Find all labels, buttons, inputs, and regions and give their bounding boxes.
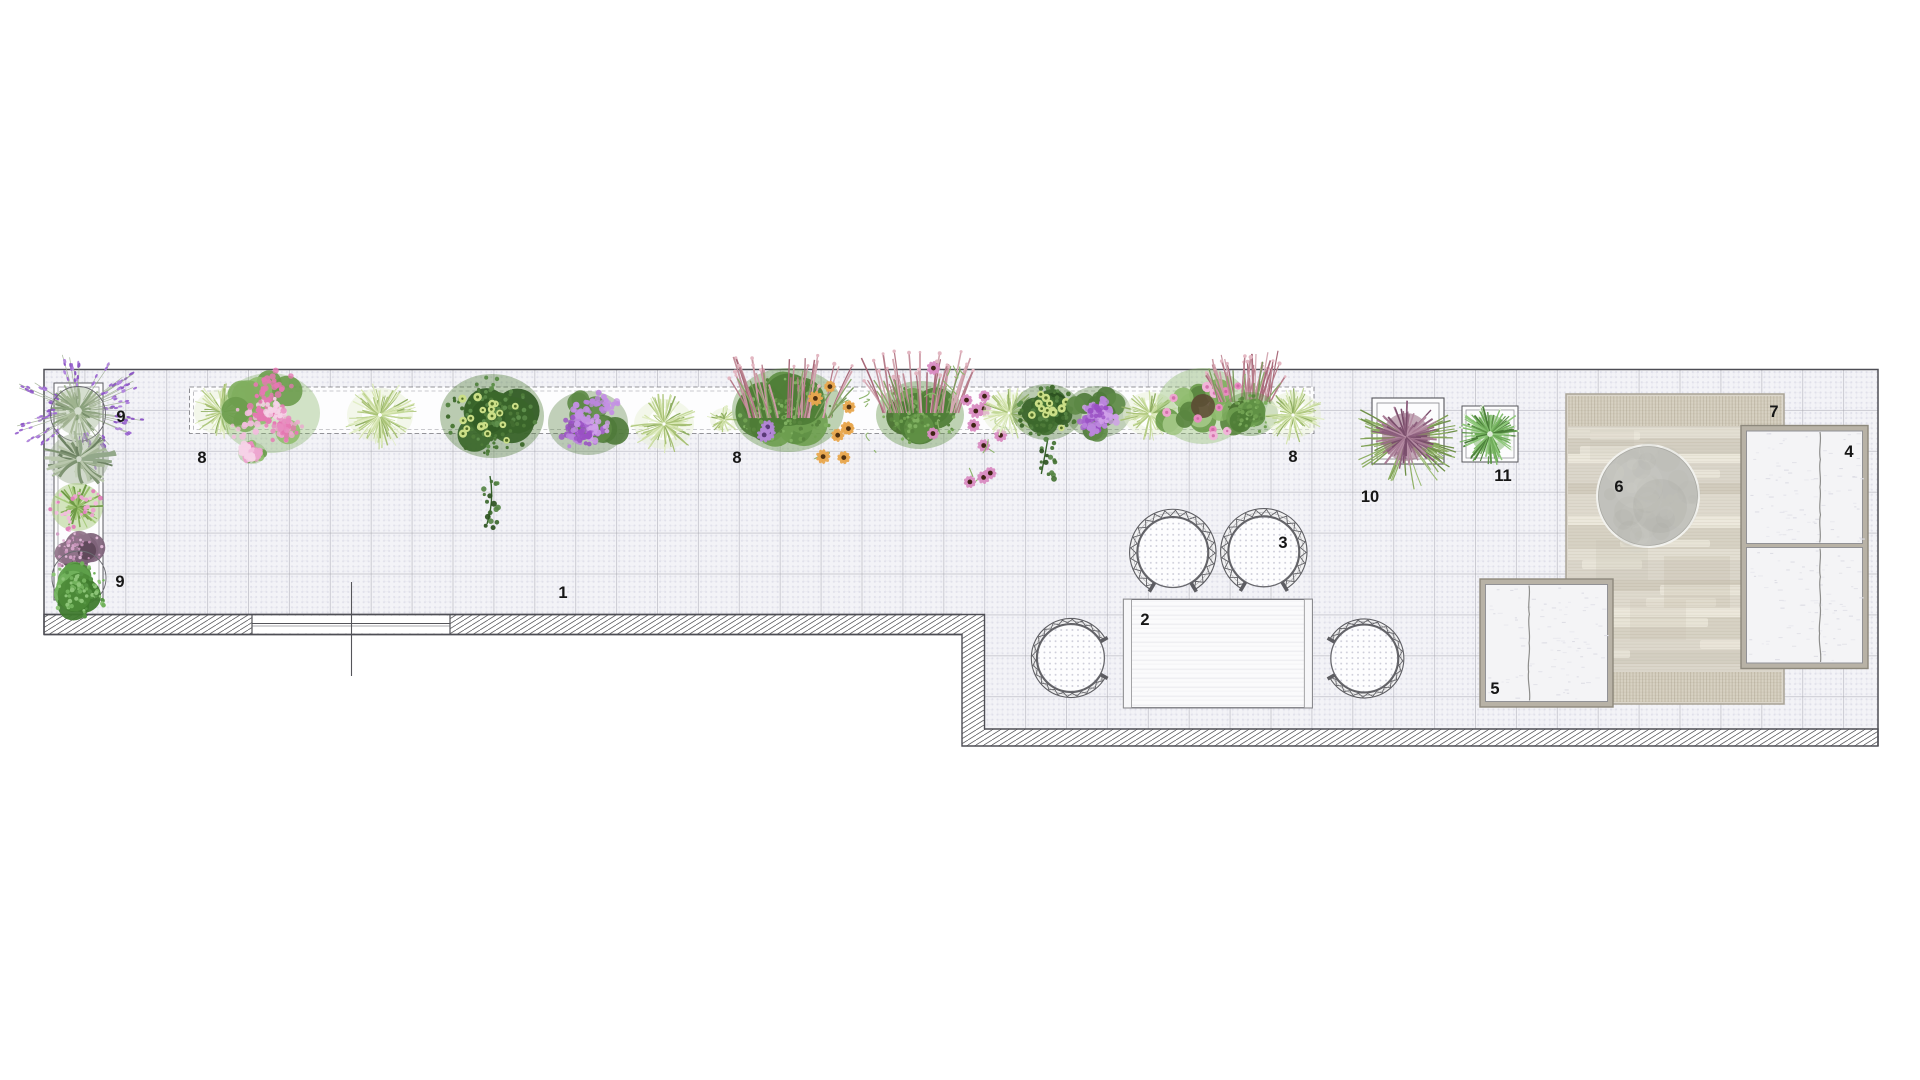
svg-text:5: 5 [1490,680,1499,698]
svg-text:9: 9 [116,408,125,426]
svg-text:8: 8 [732,449,741,467]
svg-text:10: 10 [1361,488,1379,506]
svg-text:9: 9 [115,573,124,591]
svg-text:6: 6 [1614,478,1623,496]
svg-text:1: 1 [558,584,567,602]
svg-text:7: 7 [1769,403,1778,421]
svg-text:11: 11 [1494,467,1511,485]
svg-text:3: 3 [1278,534,1287,552]
svg-text:2: 2 [1140,611,1149,629]
svg-text:8: 8 [1288,448,1297,466]
svg-text:8: 8 [197,449,206,467]
svg-text:4: 4 [1844,443,1854,461]
